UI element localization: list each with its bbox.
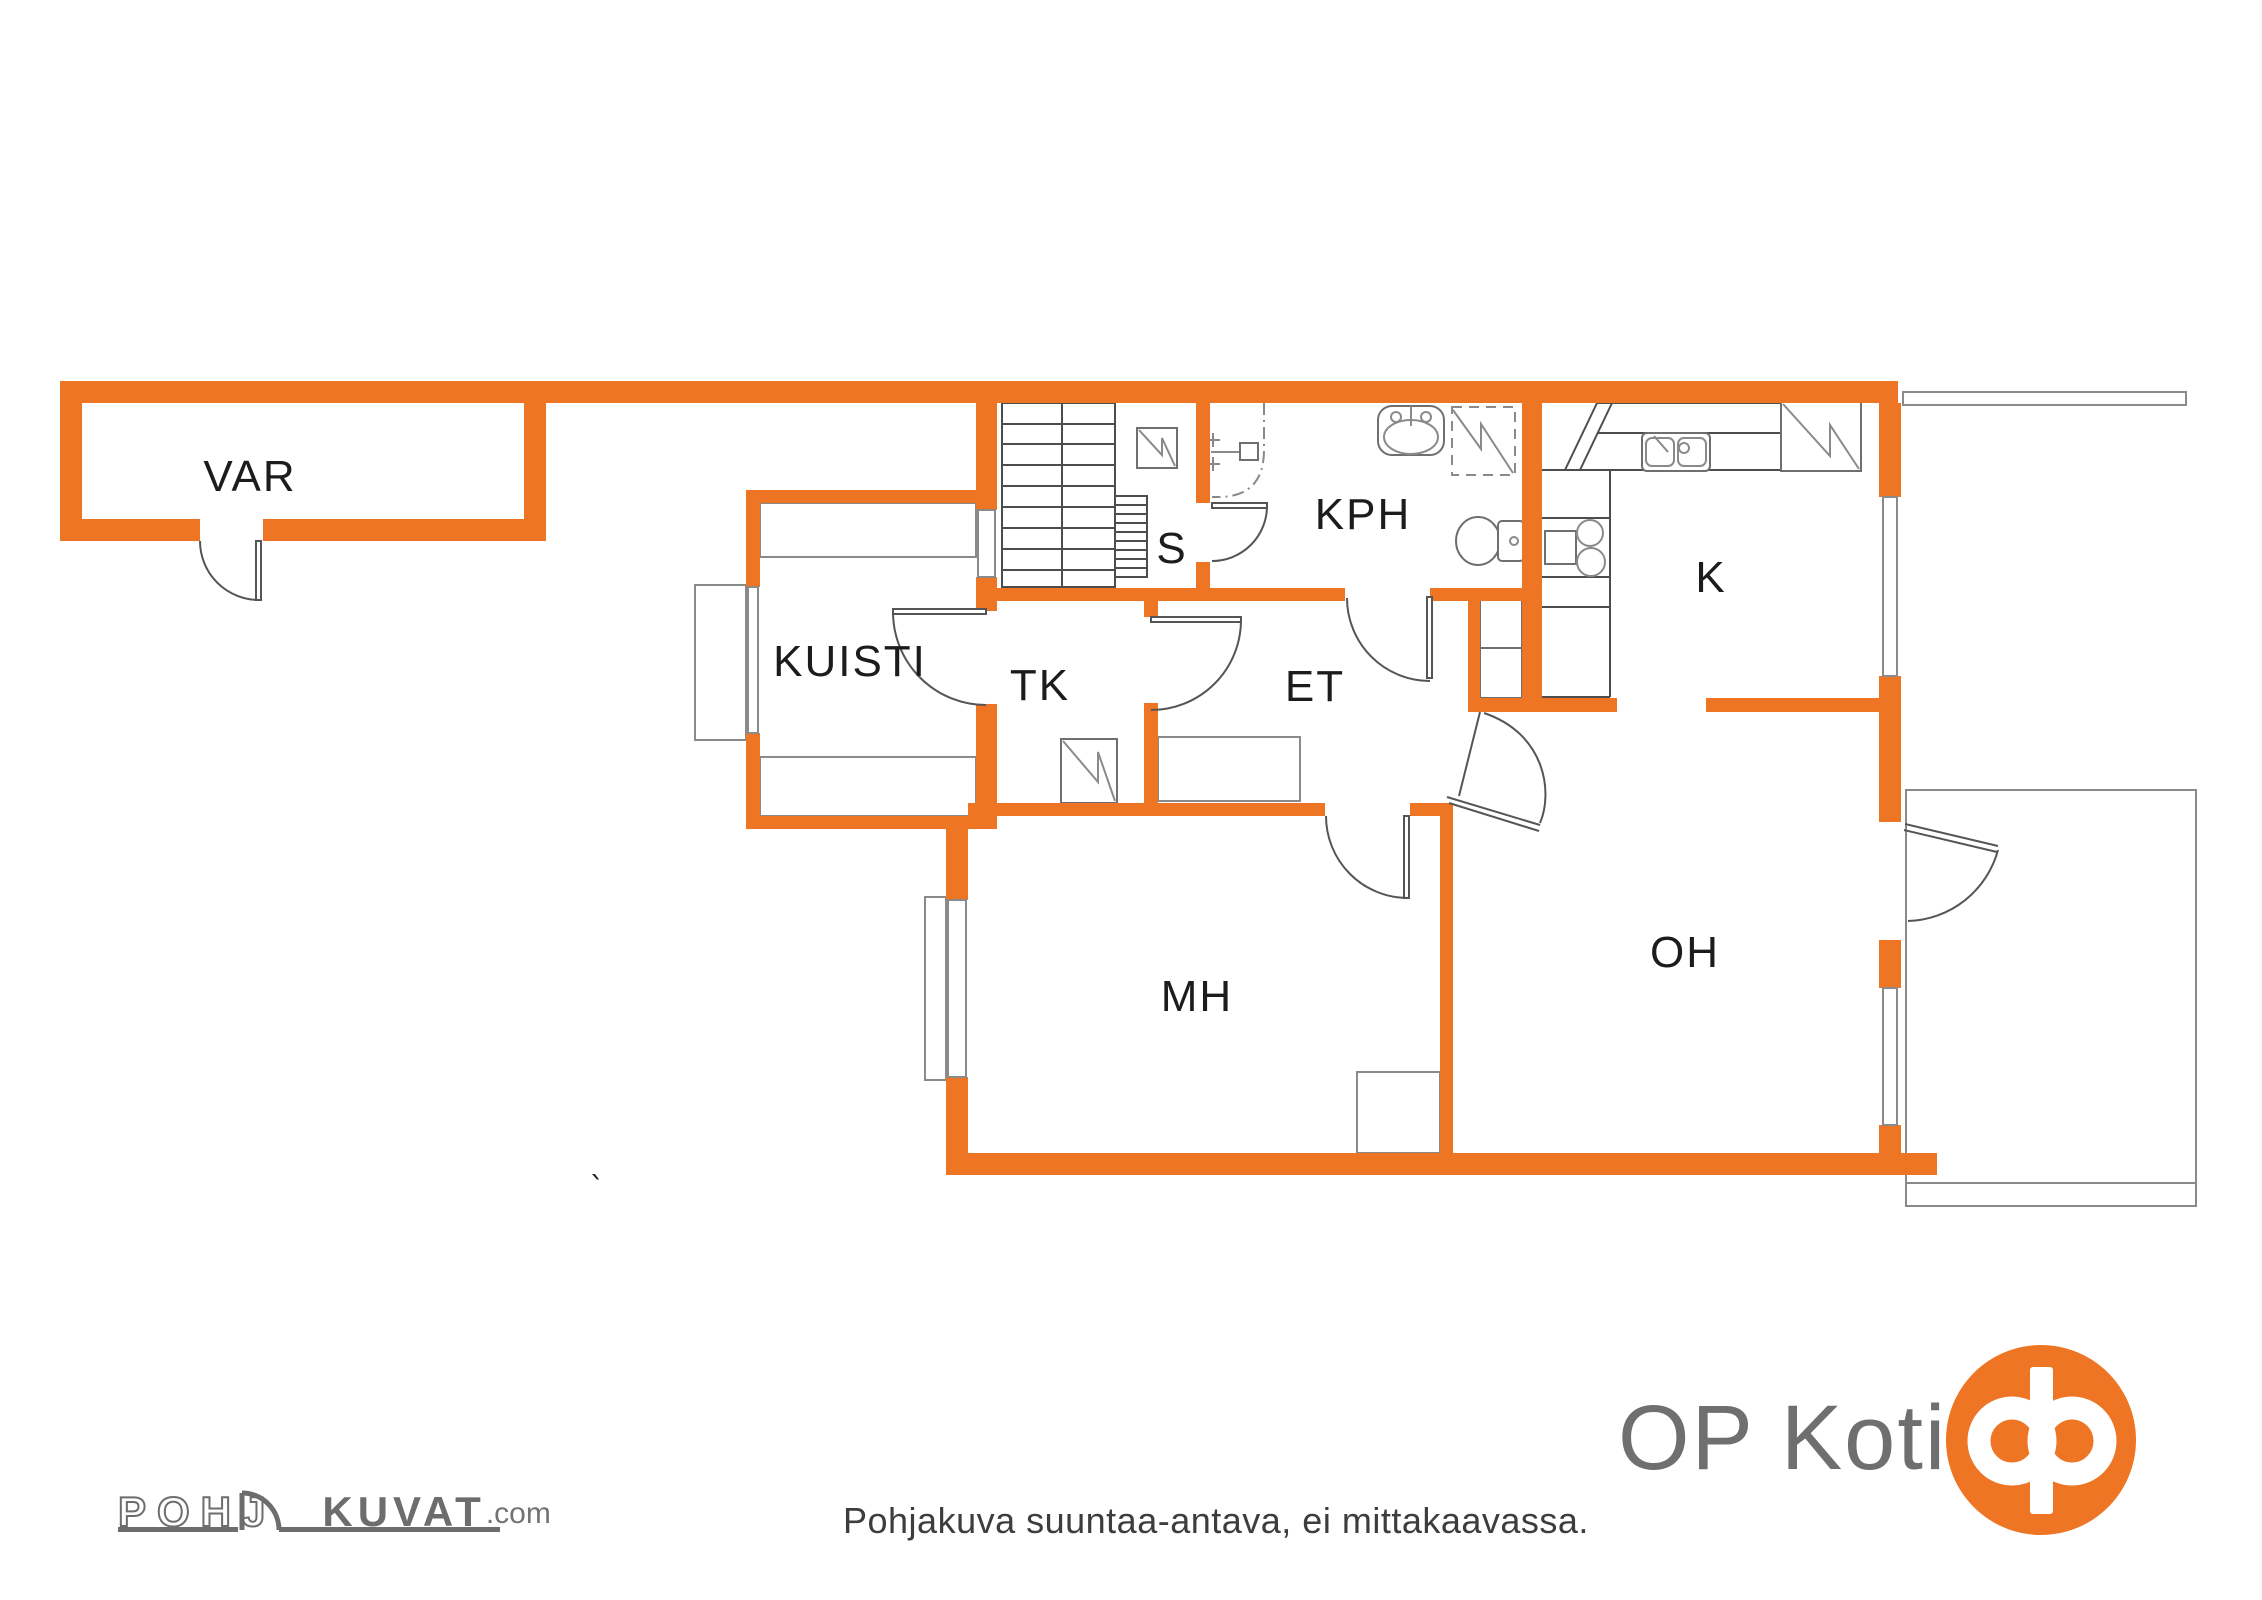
window [1883,988,1897,1125]
room-label-oh: OH [1650,928,1720,977]
wall-segment [1879,403,1901,497]
window-sill [925,897,946,1080]
wall-segment [60,381,1898,403]
wall-segment [1879,676,1901,822]
window [748,587,758,733]
stove-burner-icon [1577,548,1605,576]
wall-segment [60,519,200,541]
artifact-mark: ` [588,1171,606,1206]
wall-segment [1430,588,1522,601]
cabinet [1480,648,1522,698]
cabinet [1480,598,1522,648]
room-label-var: VAR [203,452,296,501]
oven-icon [1545,531,1576,564]
terrace-outline [1906,790,2196,1206]
pohjakuvat-logo: POHJKUVAT.com [118,1488,551,1540]
door-et-oh [1447,712,1545,831]
pohjakuvat-logo-suffix: .com [486,1497,551,1530]
porch-bench [760,757,976,816]
wall-segment [1468,601,1480,698]
wall-segment [746,490,997,503]
window [948,900,966,1077]
room-label-kuisti: KUISTI [773,637,927,686]
door-tk-et [1151,617,1241,710]
wall-segment [746,733,760,829]
fixtures [695,402,1861,1153]
sauna-heater-icon [1137,428,1177,468]
wall-segment [976,403,997,510]
chimney-square [1357,1072,1440,1153]
wall-segment [1440,816,1453,1153]
wall-segment [1706,698,1879,712]
wall-segment [946,1077,968,1153]
wall-segment [1410,803,1453,816]
room-label-et: ET [1285,662,1345,711]
wall-segment [976,704,997,816]
room-label-mh: MH [1161,972,1233,1021]
shower-icon [1452,407,1515,475]
shower-faucet-icon [1206,433,1258,471]
room-label-kph: KPH [1315,490,1411,539]
room-label-s: S [1156,524,1187,573]
floorplan-page: VAR KUISTI TK S KPH K ET MH OH ` POHJKUV… [0,0,2262,1600]
wall-segment [1144,703,1158,816]
toilet-icon [1456,517,1524,565]
window-sill [695,585,746,740]
pohjakuvat-baseline-left [118,1527,238,1532]
wall-segment [263,519,546,541]
fence-line [1903,392,2186,405]
wall-segment [1196,403,1210,503]
wall-segment [1144,601,1158,617]
door-arc-icon [232,1486,286,1536]
wall-segment [997,588,1345,601]
wall-segment [60,381,82,541]
wall-segment [1468,698,1617,712]
floorplan: VAR KUISTI TK S KPH K ET MH OH ` [0,0,2262,1600]
chimney-icon [1061,739,1117,803]
wall-segment [976,577,997,611]
door-kph [1347,597,1432,681]
wall-segment [746,490,760,587]
washbasin-icon [1378,406,1444,455]
fridge-icon [1781,402,1861,471]
disclaimer-text: Pohjakuva suuntaa-antava, ei mittakaavas… [843,1500,1589,1542]
kitchen-counter [1542,402,1861,697]
pohjakuvat-baseline-right [279,1527,500,1532]
stair-lower-treads [1115,505,1147,568]
window [1883,497,1897,676]
terrace-group [1903,392,2196,1206]
door-var [200,541,261,600]
door-mh [1326,816,1409,898]
window [978,510,995,577]
wall-segment [524,403,546,541]
stove-burner-icon [1577,520,1603,546]
stair-treads [1002,403,1115,587]
porch-bench [760,503,976,557]
room-label-tk: TK [1010,661,1070,710]
wall-segment [946,1153,1937,1175]
stair-lower-flight [1115,496,1147,577]
op-logo-icon [1946,1345,2136,1535]
wall-segment [1879,1125,1901,1153]
wall-segment [1522,403,1542,698]
door-terrace [1904,824,1998,921]
staircase [1002,403,1147,587]
wall-segment [946,816,968,900]
wardrobe [1158,737,1300,801]
kitchen-sink-icon [1642,433,1710,471]
walls [60,381,1937,1175]
wall-segment [968,803,1325,816]
room-label-k: K [1695,553,1726,602]
brand-name: OP Koti [1618,1386,1947,1491]
stair-box [1002,403,1115,587]
door-sauna [1212,503,1267,561]
wall-segment [1879,940,1901,988]
